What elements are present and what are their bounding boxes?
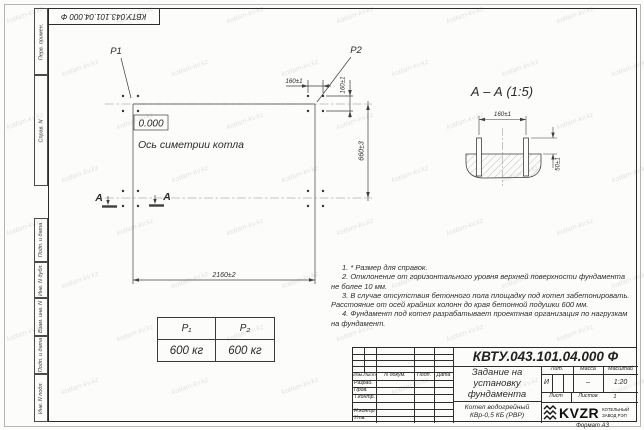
lit-value: И (541, 374, 552, 392)
note-4: 4. Фундамент под котел разрабатывает про… (331, 309, 634, 328)
col-header-date: Дата (434, 372, 453, 380)
anchor-bolt-left (477, 138, 482, 176)
logo-text: KVZR (559, 405, 599, 421)
product-name-line2: КВр-0,5 КБ (РВР) (470, 412, 524, 420)
p1-label: P1 (110, 46, 122, 57)
load-table-value-p2: 600 кг (216, 340, 274, 361)
mass-header: Масса (573, 366, 603, 374)
product-name: Котел водогрейный КВр-0,5 КБ (РВР) (453, 401, 541, 423)
drawing-title-line1: Задание на (472, 367, 523, 378)
dim-width-value: 2160±2 (211, 272, 235, 279)
section-letter-right: А (162, 191, 171, 203)
drawing-title-line3: фундамента (468, 389, 526, 400)
row-label-razrab: Разраб. (353, 380, 377, 387)
section-view (466, 116, 557, 186)
boiler-axis-label: Ось симетрии котла (138, 139, 244, 151)
p2-label: P2 (350, 45, 362, 56)
sheets-value: 1 (605, 392, 625, 402)
section-title: А – А (1:5) (470, 84, 533, 99)
load-table-header-p1: P₁ (158, 318, 216, 340)
mass-value: – (573, 374, 603, 392)
sheet-label: Лист (541, 392, 571, 402)
drawing-sheet: kotlam-kv.kzkotlam-kv.kzkotlam-kv.kzkotl… (0, 0, 644, 430)
title-block-doc-number: КВТУ.043.101.04.000 Ф (453, 348, 638, 366)
col-header-sign: Подп. (414, 372, 434, 380)
format-label: Формат А3 (565, 422, 620, 430)
note-2: 2. Отклонение от горизонтального уровня … (331, 272, 634, 291)
section-letter-left: А (94, 192, 103, 204)
boiler-outline (133, 104, 315, 284)
logo-sub2: ЗАВОД РЭП (602, 413, 629, 418)
dim-height-value: 660±3 (359, 141, 366, 161)
level-mark-value: 0.000 (138, 119, 163, 130)
dim-bolt-spacing-h-value: 160±1 (285, 78, 302, 85)
lit-header: Лит. (541, 366, 573, 374)
section-dim-height-value: 50±1 (555, 157, 562, 171)
row-label-tkontr: Т.контр. (353, 394, 377, 401)
load-table-value-p1: 600 кг (158, 340, 216, 361)
section-dim-spacing-value: 160±1 (494, 111, 511, 118)
scale-header: Масштаб (603, 366, 638, 374)
load-table: P₁ P₂ 600 кг 600 кг (157, 317, 275, 362)
note-3: 3. В случае отсутствия бетонного пола пл… (331, 291, 634, 310)
plan-view (102, 57, 372, 284)
note-1: 1. * Размер для справок. (331, 263, 634, 272)
title-block: Изм.Лист N докум. Подп. Дата Разраб. Про… (352, 347, 637, 422)
anchor-bolt-right (524, 138, 529, 176)
product-name-line1: Котел водогрейный (465, 404, 530, 412)
anchor-bolt-dots (122, 95, 324, 207)
drawing-title: Задание на установку фундамента (453, 366, 541, 401)
p1-leader-line (121, 58, 131, 98)
dim-bolt-spacing-v-value: 160±1 (340, 76, 347, 93)
sheets-label: Листов (571, 392, 605, 402)
kvzr-logo-icon (543, 405, 557, 421)
manufacturer-logo: KVZR КОТЕЛЬНЫЙ ЗАВОД РЭП (543, 402, 638, 423)
col-header-izm-list: Изм.Лист (353, 372, 376, 380)
load-table-header-p2: P₂ (216, 318, 274, 340)
notes-block: 1. * Размер для справок. 2. Отклонение о… (331, 263, 634, 328)
col-header-doc: N докум. (376, 372, 414, 380)
scale-value: 1:20 (603, 374, 638, 392)
drawing-title-line2: установку (473, 378, 520, 389)
row-label-utv: Утв. (353, 416, 377, 423)
